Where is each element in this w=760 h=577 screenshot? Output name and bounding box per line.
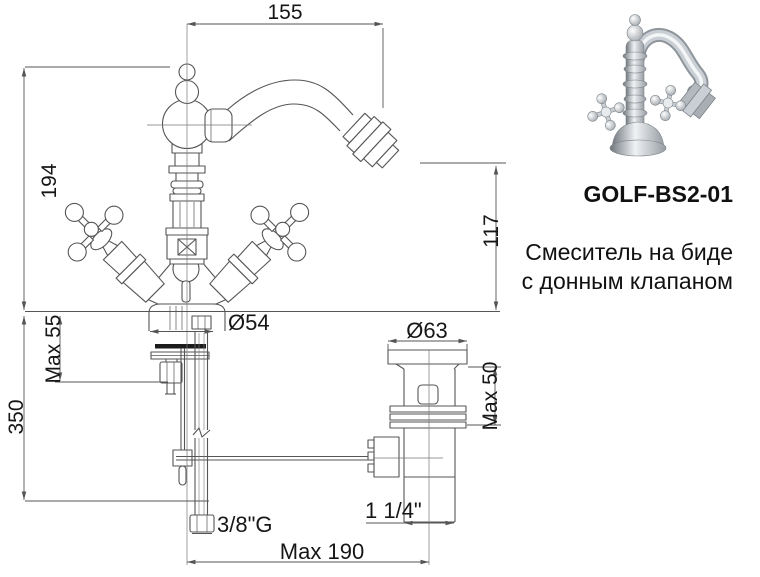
faucet-drawing bbox=[43, 64, 405, 534]
page: 155 194 117 Max 55 350 Ø54 Ø63 Max 50 3/… bbox=[0, 0, 760, 577]
popup-knob-stem bbox=[182, 281, 190, 302]
aerator bbox=[339, 109, 406, 175]
drain-flange bbox=[388, 350, 467, 364]
photo-base bbox=[610, 122, 666, 156]
spout bbox=[227, 80, 353, 141]
dim-label-max55: Max 55 bbox=[42, 315, 65, 384]
photo-right-handle bbox=[647, 82, 690, 125]
dim-label-350: 350 bbox=[5, 399, 28, 434]
dim-label-194: 194 bbox=[38, 163, 61, 198]
photo-aerator bbox=[676, 79, 717, 122]
product-photo bbox=[582, 15, 718, 157]
product-description-line1: Смеситель на биде bbox=[433, 238, 733, 267]
dim-label-max190: Max 190 bbox=[280, 539, 364, 564]
popup-rod bbox=[173, 348, 373, 485]
dim-label-155: 155 bbox=[267, 1, 302, 24]
supply-pipe bbox=[190, 331, 214, 534]
dim-label-d63: Ø63 bbox=[406, 318, 448, 343]
drain-rod-nut bbox=[368, 437, 399, 477]
product-code: GOLF-BS2-01 bbox=[433, 181, 733, 208]
dim-label-38g: 3/8"G bbox=[217, 512, 273, 537]
base-gasket bbox=[155, 344, 206, 349]
product-description-line2: с донным клапаном bbox=[433, 267, 733, 296]
dim-label-114: 1 1/4" bbox=[365, 498, 422, 523]
drain-valve-drawing bbox=[368, 350, 467, 522]
product-description: Смеситель на биде с донным клапаном bbox=[433, 238, 733, 296]
dim-label-d54: Ø54 bbox=[228, 310, 270, 335]
spout-collar bbox=[205, 109, 232, 142]
dim-label-max50: Max 50 bbox=[479, 362, 502, 431]
drain-square-hole bbox=[418, 385, 438, 404]
mounting-nut bbox=[160, 359, 182, 394]
photo-body bbox=[623, 15, 647, 137]
